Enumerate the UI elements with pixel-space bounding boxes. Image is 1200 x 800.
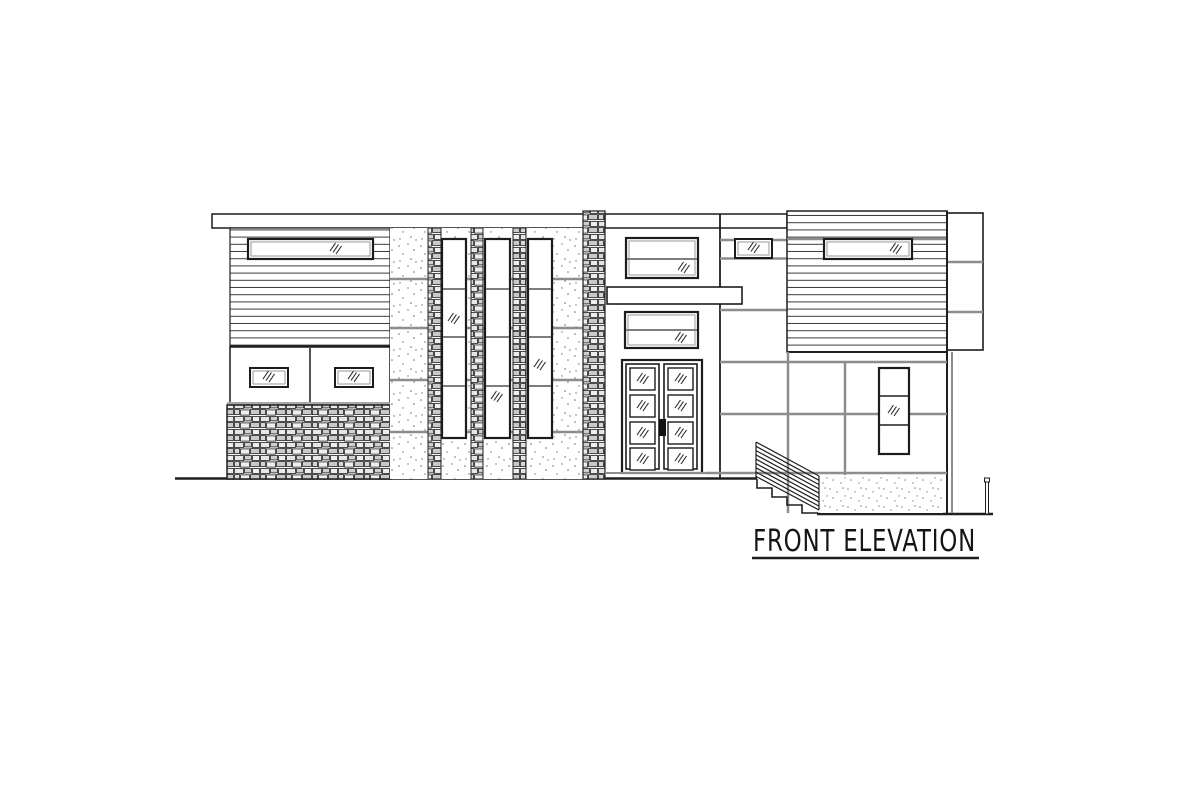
- stone-pier-1: [428, 228, 441, 479]
- stone-pier-tall: [583, 211, 605, 479]
- side-return-wall: [947, 211, 983, 513]
- fascia-right: [605, 214, 787, 228]
- entry-transom-window: [626, 238, 698, 278]
- entry-tower: [605, 214, 742, 478]
- right-wing: [787, 211, 947, 352]
- left-small-window-1: [250, 368, 288, 387]
- entry-canopy: [607, 287, 742, 304]
- lower-tall-window: [879, 368, 909, 454]
- stone-pier-2: [471, 228, 483, 479]
- fascia-left: [212, 214, 585, 228]
- stucco-bay: [390, 211, 605, 479]
- elevation-drawing: FRONT ELEVATION: [0, 0, 1200, 800]
- tall-window-2: [485, 239, 510, 438]
- drawing-title: FRONT ELEVATION: [752, 524, 979, 559]
- concrete-base-wall: [820, 475, 943, 513]
- door-handle: [659, 419, 666, 436]
- left-small-window-2: [335, 368, 373, 387]
- lower-level-wall: [705, 352, 947, 513]
- roof-fascia: [212, 214, 787, 228]
- right-ribbon-window: [824, 239, 912, 259]
- yard-post: [985, 478, 990, 514]
- tall-window-1: [442, 239, 466, 438]
- right-siding-wall: [787, 211, 947, 352]
- elevation-sheet: FRONT ELEVATION: [0, 0, 1200, 800]
- tall-window-3: [528, 239, 552, 438]
- entry-door: [622, 360, 702, 473]
- left-clerestory-window: [248, 239, 373, 259]
- left-wing: [227, 228, 393, 479]
- stone-veneer-base: [227, 405, 391, 479]
- link-small-window: [735, 239, 772, 258]
- title-text: FRONT ELEVATION: [753, 524, 976, 559]
- stone-pier-3: [513, 228, 526, 479]
- entry-mid-window: [625, 312, 698, 348]
